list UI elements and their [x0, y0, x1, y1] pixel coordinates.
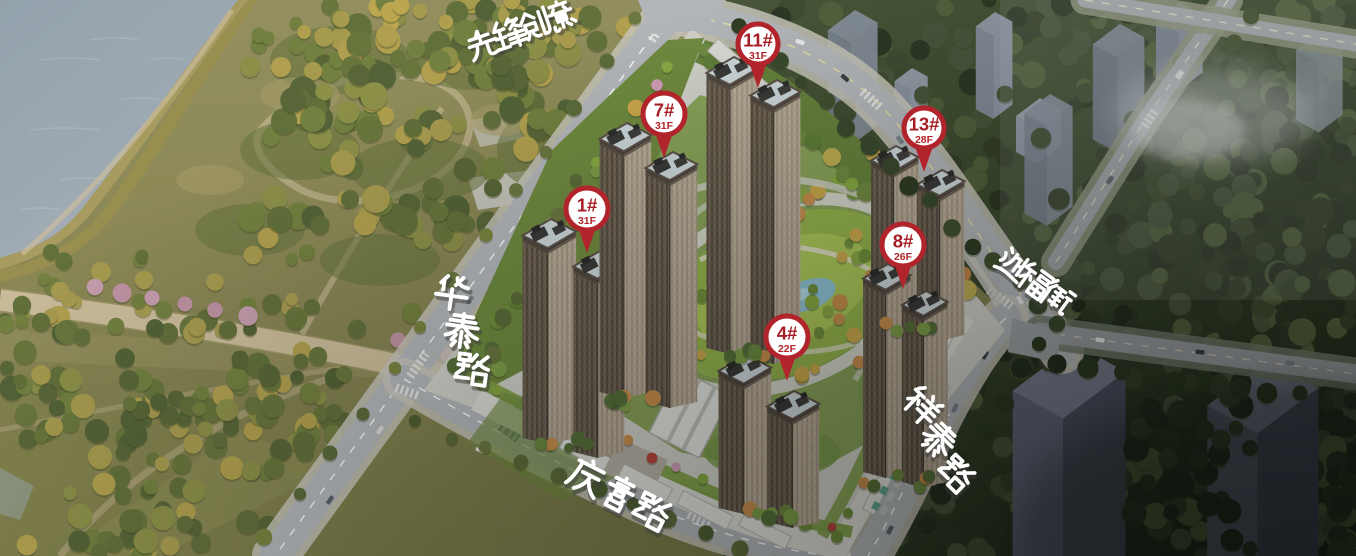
svg-text:28F: 28F [915, 134, 934, 146]
svg-text:31F: 31F [749, 50, 768, 62]
svg-text:8#: 8# [893, 231, 914, 252]
svg-text:4#: 4# [777, 323, 798, 344]
svg-text:1#: 1# [577, 195, 598, 216]
svg-text:13#: 13# [909, 114, 940, 135]
svg-text:22F: 22F [778, 343, 797, 355]
svg-text:31F: 31F [655, 120, 674, 132]
svg-text:31F: 31F [578, 215, 597, 227]
svg-text:7#: 7# [654, 100, 675, 121]
svg-text:11#: 11# [743, 30, 773, 51]
svg-text:26F: 26F [894, 251, 913, 263]
